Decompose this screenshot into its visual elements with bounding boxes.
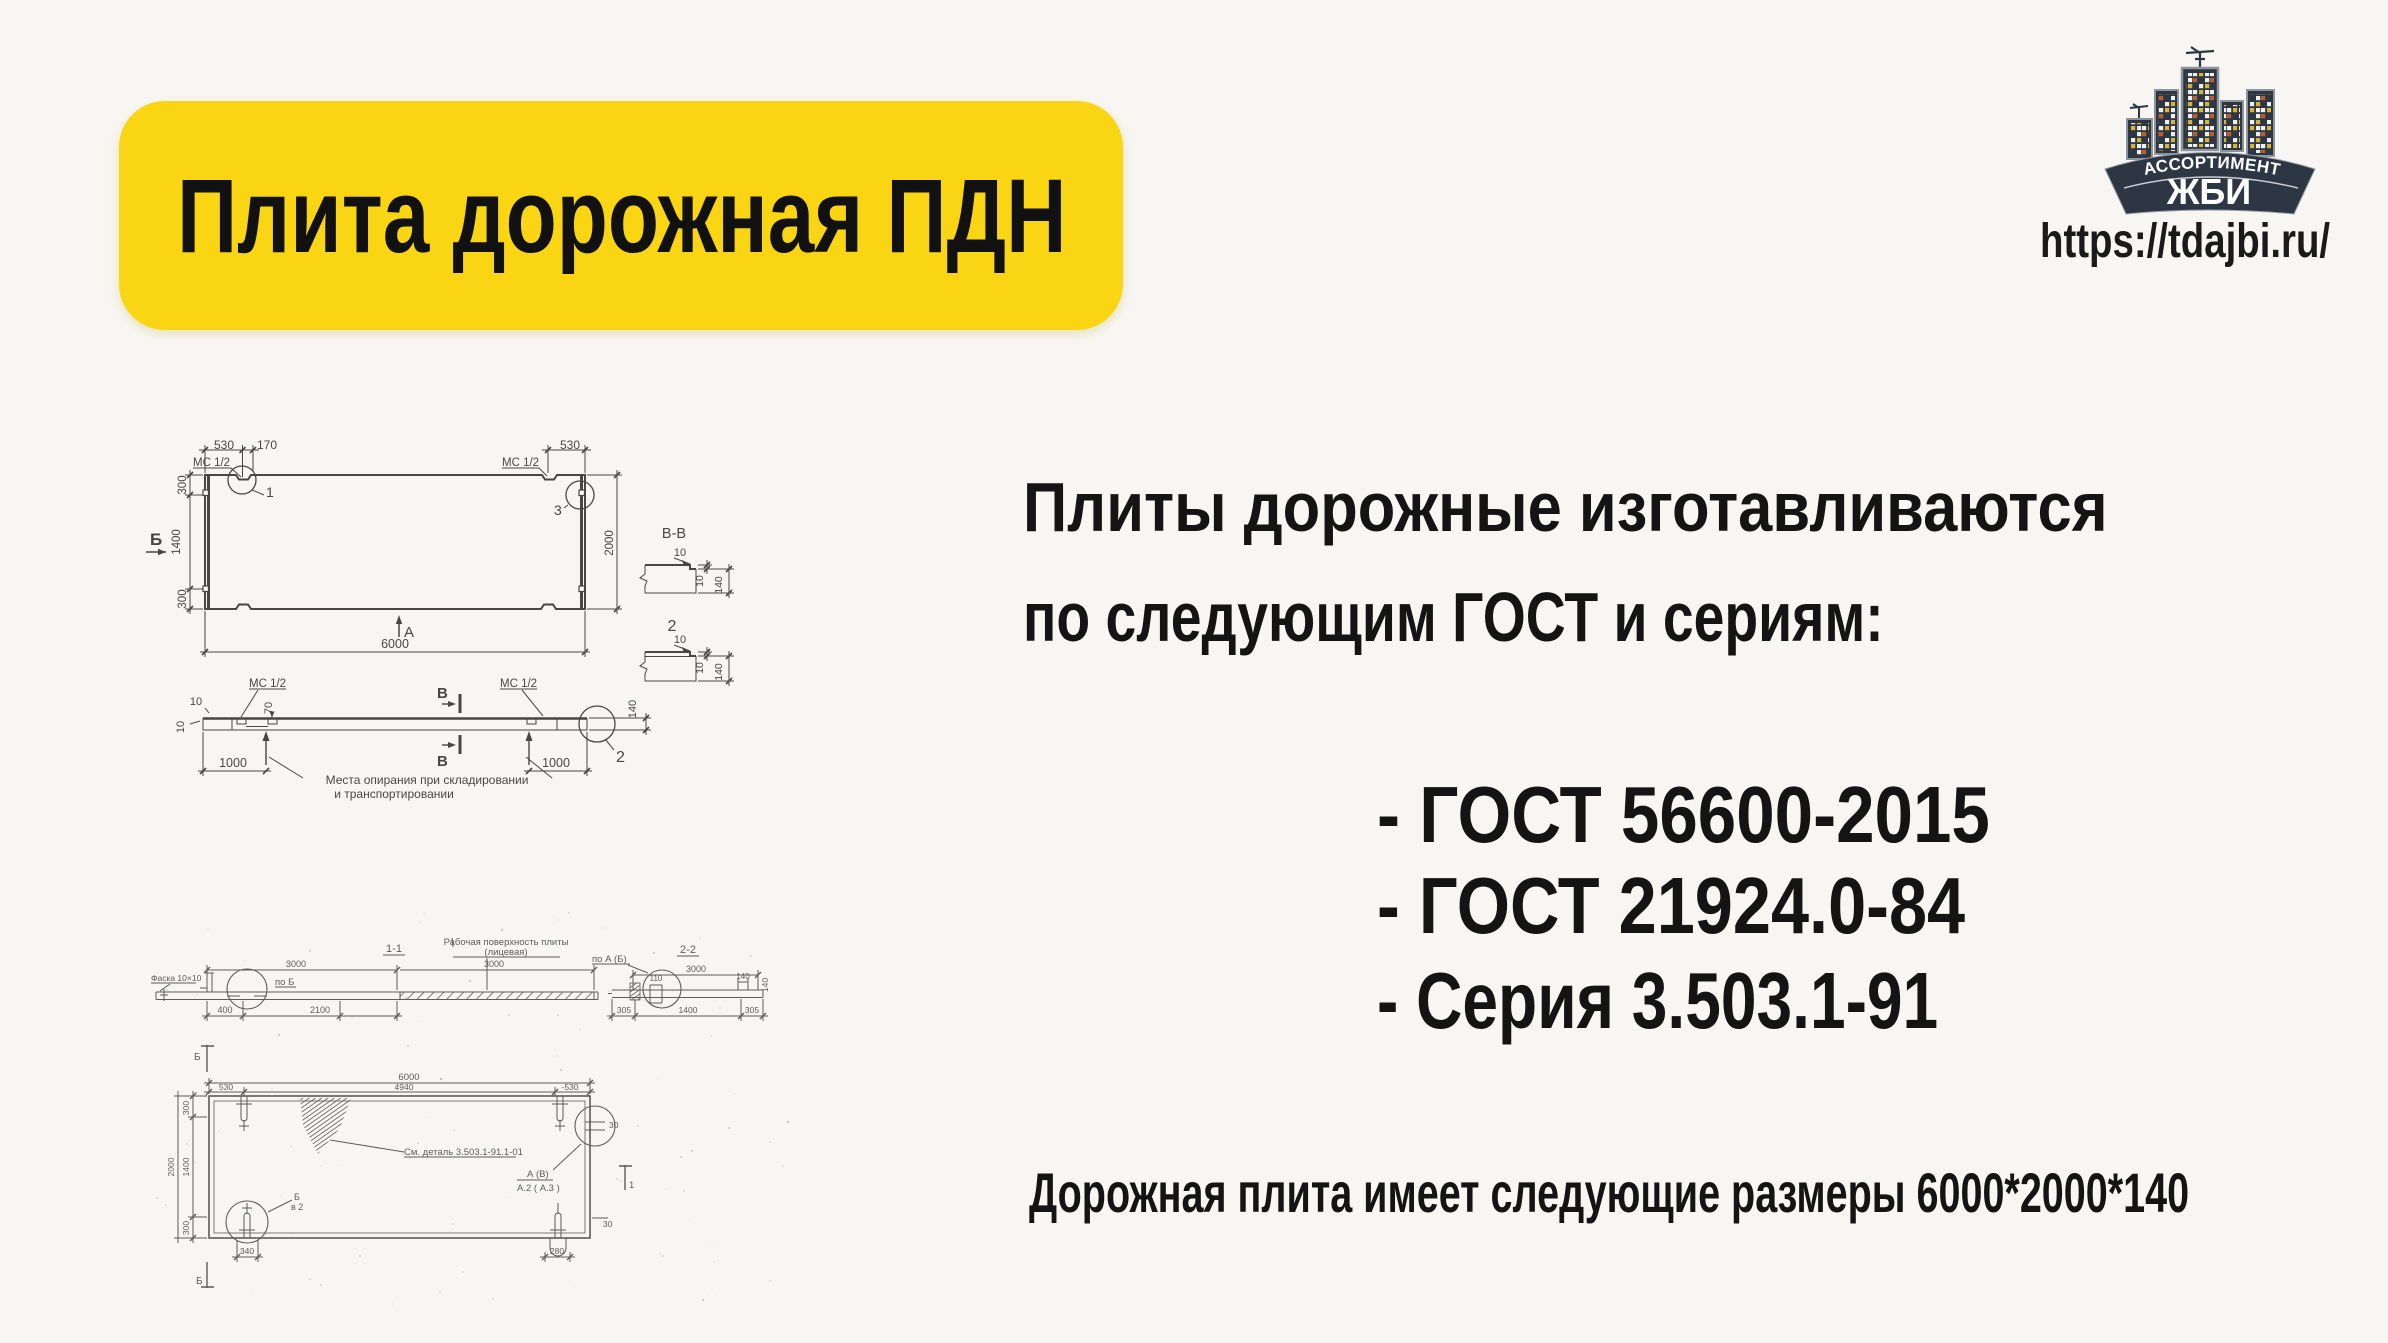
svg-text:140: 140 <box>736 972 750 981</box>
svg-text:2: 2 <box>616 749 625 766</box>
svg-text:А.2 ( А.3 ): А.2 ( А.3 ) <box>517 1183 560 1194</box>
svg-text:530: 530 <box>219 1082 233 1092</box>
svg-text:Места опирания при складирован: Места опирания при складировании <box>326 773 529 787</box>
svg-text:340: 340 <box>240 1246 254 1256</box>
svg-text:1-1: 1-1 <box>386 943 402 955</box>
svg-text:Б: Б <box>194 1052 201 1063</box>
svg-text:3000: 3000 <box>286 959 306 969</box>
svg-text:400: 400 <box>217 1005 232 1015</box>
svg-text:110: 110 <box>650 974 663 983</box>
svg-text:140: 140 <box>760 978 770 992</box>
svg-text:300: 300 <box>181 1101 191 1115</box>
svg-text:10: 10 <box>674 547 686 559</box>
svg-text:300: 300 <box>177 475 189 494</box>
svg-text:3000: 3000 <box>686 964 706 974</box>
svg-text:1400: 1400 <box>679 1005 698 1015</box>
svg-text:1: 1 <box>266 484 274 500</box>
svg-text:2-2: 2-2 <box>680 944 696 956</box>
svg-text:305: 305 <box>617 1005 631 1015</box>
svg-text:10: 10 <box>694 662 706 674</box>
svg-text:в 2: в 2 <box>291 1202 303 1212</box>
svg-text:2100: 2100 <box>310 1005 330 1015</box>
svg-text:10: 10 <box>190 696 202 708</box>
svg-text:МС 1/2: МС 1/2 <box>500 678 537 690</box>
svg-text:10: 10 <box>175 721 187 733</box>
svg-text:(лицевая): (лицевая) <box>484 947 527 958</box>
svg-text:300: 300 <box>177 589 189 608</box>
svg-text:Б: Б <box>196 1276 203 1287</box>
svg-text:3: 3 <box>554 502 562 518</box>
svg-text:Б: Б <box>150 530 162 549</box>
svg-text:140: 140 <box>713 663 725 681</box>
svg-text:1: 1 <box>629 1180 634 1191</box>
svg-text:МС 1/2: МС 1/2 <box>193 457 230 469</box>
svg-text:530: 530 <box>560 438 580 452</box>
svg-text:См. деталь 3.503.1-91.1-01: См. деталь 3.503.1-91.1-01 <box>404 1147 523 1158</box>
svg-text:МС 1/2: МС 1/2 <box>249 678 286 690</box>
svg-text:В: В <box>437 685 448 702</box>
svg-text:305: 305 <box>745 1005 759 1015</box>
svg-text:2000: 2000 <box>604 530 616 556</box>
svg-text:4940: 4940 <box>395 1082 414 1092</box>
svg-text:140: 140 <box>713 576 725 594</box>
svg-text:30: 30 <box>603 1219 613 1229</box>
svg-text:10: 10 <box>694 575 706 587</box>
svg-text:300: 300 <box>181 1221 191 1235</box>
svg-text:30: 30 <box>609 1120 619 1130</box>
svg-text:Б: Б <box>294 1192 300 1202</box>
svg-text:и транспортировании: и транспортировании <box>334 787 454 801</box>
svg-text:280: 280 <box>550 1246 564 1256</box>
svg-text:по А (Б): по А (Б) <box>592 954 627 965</box>
svg-text:2000: 2000 <box>166 1157 176 1176</box>
svg-text:ЖБИ: ЖБИ <box>2166 171 2251 212</box>
svg-text:1000: 1000 <box>219 756 247 770</box>
svg-text:3000: 3000 <box>484 959 504 969</box>
svg-text:В-В: В-В <box>662 526 686 542</box>
svg-text:530: 530 <box>214 438 234 452</box>
svg-text:МС 1/2: МС 1/2 <box>502 457 539 469</box>
svg-text:1400: 1400 <box>171 529 183 555</box>
svg-text:А: А <box>404 624 414 641</box>
svg-text:140: 140 <box>627 700 639 718</box>
svg-text:А (В): А (В) <box>527 1169 549 1180</box>
svg-text:Фаска 10×10: Фаска 10×10 <box>151 973 202 983</box>
svg-text:10: 10 <box>674 634 686 646</box>
svg-text:170: 170 <box>257 438 277 452</box>
svg-text:2: 2 <box>668 618 677 635</box>
svg-text:1400: 1400 <box>181 1157 191 1176</box>
svg-text:по Б: по Б <box>275 977 294 988</box>
svg-text:1000: 1000 <box>542 756 570 770</box>
svg-text:-530: -530 <box>561 1082 578 1092</box>
svg-text:В: В <box>437 753 448 770</box>
